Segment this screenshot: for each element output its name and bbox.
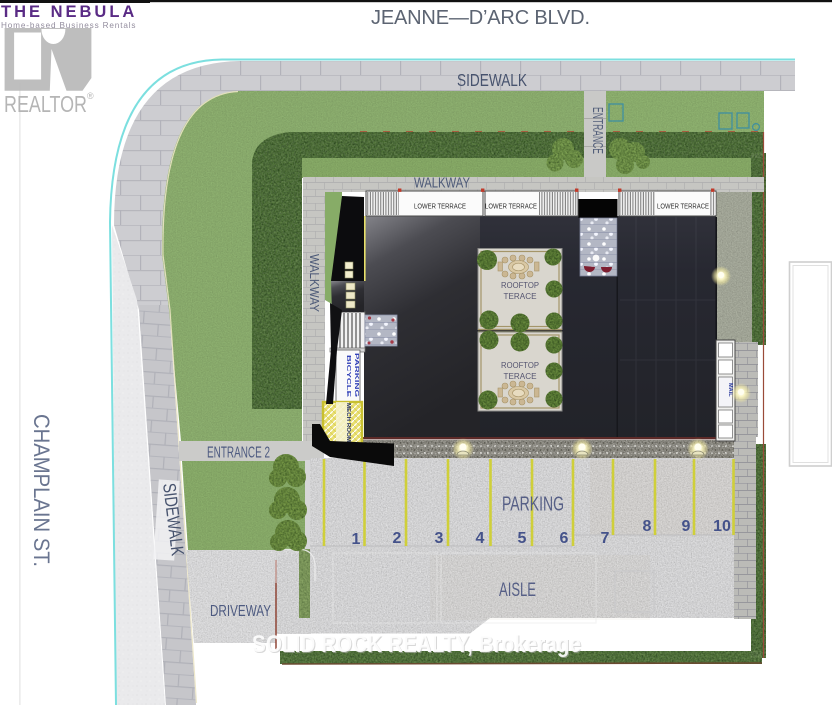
svg-text:MECH ROOM: MECH ROOM [345,403,351,442]
svg-text:5: 5 [518,530,527,547]
svg-text:ROOFTOP: ROOFTOP [501,361,539,370]
svg-text:WALKWAY: WALKWAY [307,254,322,312]
svg-text:ENTRANCE 2: ENTRANCE 2 [207,445,270,462]
svg-text:REALTOR: REALTOR [4,91,87,117]
svg-text:ENTRANCE: ENTRANCE [589,107,606,154]
svg-text:3: 3 [435,530,444,547]
svg-text:WALKWAY: WALKWAY [414,175,470,192]
svg-text:AISLE: AISLE [499,580,536,601]
svg-text:PARKING: PARKING [502,494,564,516]
svg-text:DRIVEWAY: DRIVEWAY [210,603,271,620]
svg-text:ROOFTOP: ROOFTOP [501,281,539,290]
svg-text:8: 8 [643,518,652,535]
svg-text:JEANNE—D’ARC BLVD.: JEANNE—D’ARC BLVD. [371,7,590,29]
svg-text:CHAMPLAIN ST.: CHAMPLAIN ST. [29,414,54,567]
svg-text:LOWER TERRACE: LOWER TERRACE [657,202,709,211]
svg-text:2: 2 [393,530,402,547]
svg-text:THE NEBULA: THE NEBULA [1,3,137,21]
svg-text:4: 4 [476,530,485,547]
svg-text:BICYCLE: BICYCLE [345,355,351,397]
svg-text:6: 6 [560,530,569,547]
svg-text:®: ® [87,91,94,101]
svg-text:PARKING: PARKING [353,353,359,398]
svg-text:LOWER TERRACE: LOWER TERRACE [414,202,466,211]
svg-text:TERACE: TERACE [504,372,537,381]
svg-text:1: 1 [352,531,361,548]
svg-text:SIDEWALK: SIDEWALK [457,70,527,90]
svg-text:7: 7 [601,530,610,547]
svg-text:SOLID ROCK REALTY, Brokerage: SOLID ROCK REALTY, Brokerage [252,631,581,658]
svg-text:9: 9 [682,518,691,535]
svg-text:TERACE: TERACE [504,292,537,301]
svg-text:LOWER TERRACE: LOWER TERRACE [485,202,537,211]
svg-text:10: 10 [713,518,731,535]
